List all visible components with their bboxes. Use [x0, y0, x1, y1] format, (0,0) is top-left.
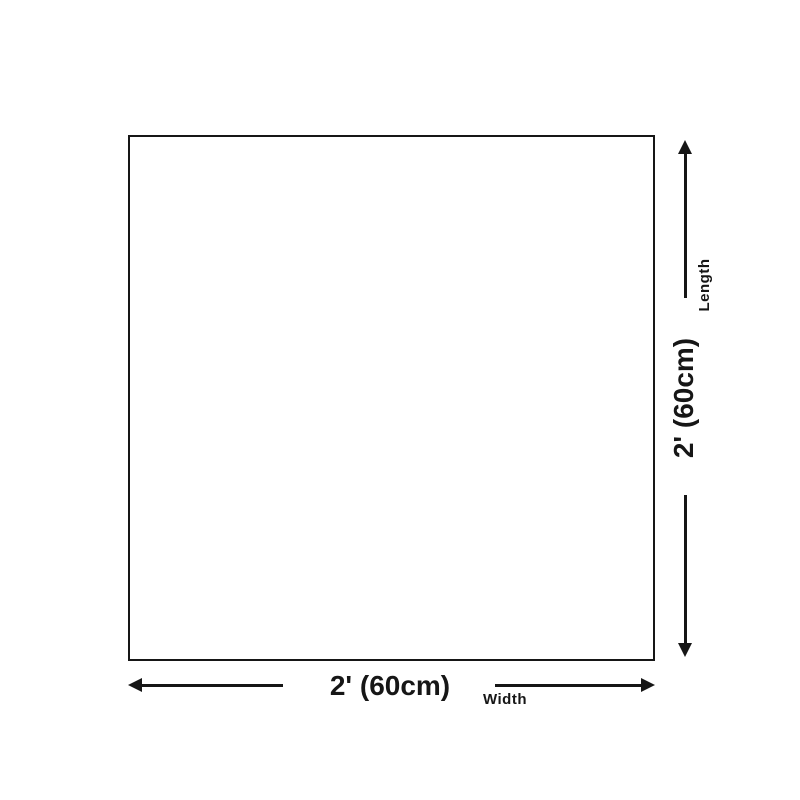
width-dimension-label: Width [470, 692, 540, 708]
length-arrow-top-segment [684, 152, 687, 298]
width-arrow-right-arrowhead-icon [641, 678, 655, 692]
width-arrow-left-segment [140, 684, 283, 687]
product-dimensions-diagram: 2' (60cm) Width Length 2' (60cm) [0, 0, 800, 800]
length-arrow-bottom-segment [684, 495, 687, 643]
product-outline [128, 135, 655, 661]
length-dimension-value: 2' (60cm) [668, 328, 700, 468]
width-dimension-value: 2' (60cm) [325, 670, 455, 702]
width-arrow-right-segment [495, 684, 643, 687]
length-dimension-label: Length [697, 250, 713, 320]
length-arrow-bottom-arrowhead-icon [678, 643, 692, 657]
